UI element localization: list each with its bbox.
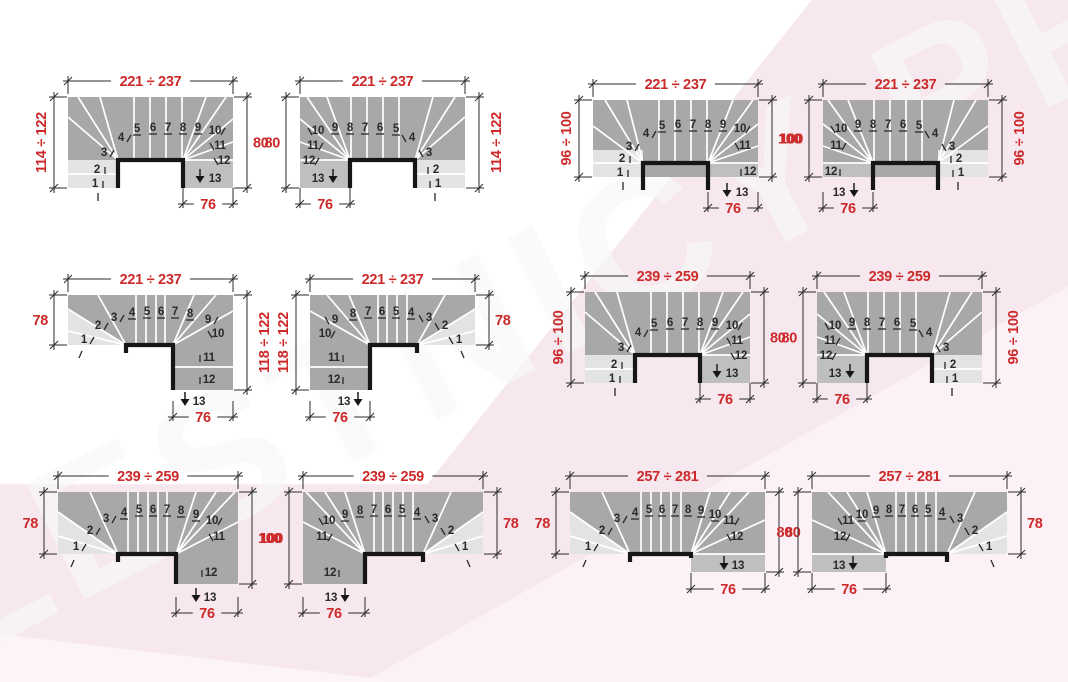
step-number: 12 <box>303 155 315 167</box>
step-number: 10 <box>212 328 224 340</box>
step-number: 12 <box>218 155 230 167</box>
step-number: 5 <box>393 306 400 318</box>
stairwell-edge <box>126 345 173 390</box>
step-number: 9 <box>720 119 726 131</box>
step-number: 12 <box>744 166 756 178</box>
step-number: 8 <box>347 122 354 134</box>
step-number: 2 <box>619 153 625 165</box>
step-number: 10 <box>835 123 847 135</box>
step-number: 6 <box>912 504 918 516</box>
step-number: 9 <box>332 314 338 326</box>
step-number: 6 <box>377 122 383 134</box>
step-number: 11 <box>830 140 843 152</box>
step-number: 3 <box>103 513 109 525</box>
step-number: 8 <box>178 505 185 517</box>
step-number: 13 <box>312 173 324 185</box>
dim-top: 239 ÷ 259 <box>869 269 931 285</box>
dim-left: 80 <box>776 525 792 541</box>
step-number: 13 <box>736 187 748 199</box>
step-number: 3 <box>949 141 955 153</box>
step-number: 10 <box>206 515 218 527</box>
dim-top: 221 ÷ 237 <box>120 272 182 288</box>
step-number: 10 <box>734 123 746 135</box>
step-number: 8 <box>187 308 194 320</box>
step-number: 5 <box>393 123 400 135</box>
dim-right: 96 ÷ 100 <box>1006 310 1022 364</box>
dim-top: 239 ÷ 259 <box>362 469 424 485</box>
step-number: 1 <box>952 373 959 385</box>
dim-left: 78 <box>32 313 48 329</box>
step-number: 7 <box>672 504 678 516</box>
step-number: 6 <box>150 504 156 516</box>
step-number: 2 <box>94 164 100 176</box>
dim-top: 221 ÷ 237 <box>120 74 182 90</box>
step-number: 5 <box>659 120 666 132</box>
dim-bottom: 76 <box>720 582 736 598</box>
step-number: 6 <box>659 504 665 516</box>
step-number: 4 <box>129 307 136 319</box>
step-number: 1 <box>462 541 469 553</box>
dim-left: 96 ÷ 100 <box>559 111 575 165</box>
step-number: 3 <box>432 513 438 525</box>
step-number: 12 <box>324 567 336 579</box>
step-number: 13 <box>204 592 216 604</box>
step-number: 1 <box>81 334 88 346</box>
stair-diagram-d7: 12345678910111213239 ÷ 25996 ÷ 1008076 <box>535 262 800 414</box>
stair-diagram-d6: 12345678910111213221 ÷ 237118 ÷ 1227876 <box>260 265 525 441</box>
dim-bottom: 76 <box>199 606 215 622</box>
dim-left: 78 <box>534 516 550 532</box>
step-number: 3 <box>626 141 632 153</box>
step-number: 11 <box>328 352 341 364</box>
step-number: 3 <box>426 147 432 159</box>
dim-right: 78 <box>495 313 511 329</box>
step-number: 8 <box>357 505 364 517</box>
dim-left: 80 <box>264 136 280 152</box>
stairwell-edge <box>118 554 176 584</box>
step-number: 12 <box>328 374 340 386</box>
step-number: 2 <box>950 359 956 371</box>
stair-diagram-d9: 12345678910111213239 ÷ 2597810076 <box>8 462 288 637</box>
step-number: 6 <box>675 119 681 131</box>
step-number: 6 <box>667 317 673 329</box>
step-number: 9 <box>332 122 338 134</box>
dim-right: 114 ÷ 122 <box>489 112 505 173</box>
step-number: 13 <box>325 592 337 604</box>
step-number: 12 <box>731 531 743 543</box>
step-number: 11 <box>307 140 320 152</box>
step-number: 13 <box>338 396 350 408</box>
step-number: 2 <box>956 153 962 165</box>
step-number: 2 <box>448 525 454 537</box>
step-number: 6 <box>158 306 164 318</box>
step-number: 4 <box>939 507 946 519</box>
step-number: 7 <box>885 119 891 131</box>
step-number: 9 <box>712 317 718 329</box>
step-number: 7 <box>879 317 885 329</box>
step-number: 7 <box>164 504 170 516</box>
step-number: 2 <box>442 320 448 332</box>
dim-left: 78 <box>22 516 38 532</box>
step-number: 12 <box>735 350 747 362</box>
descent-arrow-icon <box>341 595 350 602</box>
step-number: 2 <box>433 164 439 176</box>
step-number: 12 <box>834 531 846 543</box>
step-number: 10 <box>726 320 738 332</box>
dim-bottom: 76 <box>200 197 216 213</box>
descent-arrow-icon <box>723 190 732 197</box>
dim-left: 96 ÷ 100 <box>551 310 567 364</box>
step-number: 7 <box>365 306 371 318</box>
dim-top: 239 ÷ 259 <box>117 469 179 485</box>
step-number: 7 <box>690 119 696 131</box>
dim-top: 221 ÷ 237 <box>352 74 414 90</box>
step-number: 11 <box>824 335 837 347</box>
step-number: 7 <box>165 122 171 134</box>
step-number: 11 <box>213 531 226 543</box>
step-number: 8 <box>864 317 871 329</box>
stair-diagram-d8: 12345678910111213239 ÷ 2598096 ÷ 10076 <box>767 262 1032 414</box>
dim-right: 78 <box>1027 516 1043 532</box>
stairwell-edge <box>886 554 947 562</box>
step-number: 8 <box>870 119 877 131</box>
dim-right: 78 <box>503 516 519 532</box>
step-number: 11 <box>842 515 855 527</box>
step-number: 7 <box>362 122 368 134</box>
dim-top: 221 ÷ 237 <box>645 77 707 93</box>
stair-diagram-d1: 12345678910111213221 ÷ 237114 ÷ 1228076 <box>18 67 283 219</box>
step-number: 5 <box>910 318 917 330</box>
step-number: 9 <box>873 505 879 517</box>
step-number: 6 <box>379 306 385 318</box>
step-number: 8 <box>705 119 712 131</box>
step-number: 12 <box>825 166 837 178</box>
step-number: 5 <box>651 318 658 330</box>
stair-diagram-d4: 12345678910111213221 ÷ 23710096 ÷ 10076 <box>773 70 1038 228</box>
step-number: 8 <box>886 504 893 516</box>
stair-diagram-d2: 12345678910111213221 ÷ 23780114 ÷ 12276 <box>250 67 515 219</box>
step-number: 3 <box>111 312 117 324</box>
dim-bottom: 76 <box>195 410 211 426</box>
dim-top: 221 ÷ 237 <box>875 77 937 93</box>
stair-diagram-d5: 12345678910111213221 ÷ 23778118 ÷ 12276 <box>18 265 283 441</box>
stairwell-edge <box>365 554 423 584</box>
step-number: 6 <box>150 122 156 134</box>
step-number: 11 <box>723 515 736 527</box>
dim-left: 114 ÷ 122 <box>34 112 50 173</box>
step-number: 4 <box>632 507 639 519</box>
step-number: 9 <box>698 505 704 517</box>
step-number: 9 <box>849 317 855 329</box>
step-number: 3 <box>614 513 620 525</box>
step-number: 4 <box>932 128 939 140</box>
dim-left: 100 <box>780 132 804 148</box>
step-number: 9 <box>205 314 211 326</box>
step-number: 5 <box>916 120 923 132</box>
dim-bottom: 76 <box>725 201 741 217</box>
step-number: 3 <box>957 513 963 525</box>
step-number: 13 <box>833 187 845 199</box>
dim-top: 221 ÷ 237 <box>362 272 424 288</box>
step-number: 12 <box>820 350 832 362</box>
step-number: 4 <box>118 132 125 144</box>
step-number: 9 <box>195 122 201 134</box>
dim-bottom: 76 <box>332 410 348 426</box>
step-number: 3 <box>101 147 107 159</box>
step-number: 1 <box>456 334 463 346</box>
dim-bottom: 76 <box>326 606 342 622</box>
step-number: 7 <box>371 504 377 516</box>
step-number: 11 <box>739 140 752 152</box>
step-number: 1 <box>958 167 965 179</box>
step-number: 11 <box>203 352 216 364</box>
step-number: 1 <box>73 541 80 553</box>
step-number: 13 <box>726 368 738 380</box>
stairwell-edge <box>867 355 932 383</box>
step-number: 11 <box>316 531 329 543</box>
step-number: 10 <box>323 515 335 527</box>
step-number: 8 <box>350 308 357 320</box>
step-number: 5 <box>925 504 932 516</box>
dim-right: 96 ÷ 100 <box>1012 111 1028 165</box>
step-number: 4 <box>926 327 933 339</box>
step-number: 4 <box>409 132 416 144</box>
dim-left: 118 ÷ 122 <box>276 312 292 373</box>
step-number: 12 <box>203 374 215 386</box>
step-number: 8 <box>180 122 187 134</box>
step-number: 7 <box>899 504 905 516</box>
stairs-catalog-canvas: LESTNICY-PROSTO.RULESTNICY-PROSTO.RU 123… <box>0 0 1068 682</box>
step-number: 2 <box>87 525 93 537</box>
stairwell-edge <box>635 355 700 383</box>
step-number: 12 <box>205 567 217 579</box>
step-number: 4 <box>121 507 128 519</box>
step-number: 3 <box>426 312 432 324</box>
step-number: 9 <box>342 509 348 521</box>
step-number: 10 <box>319 328 331 340</box>
step-number: 3 <box>943 342 949 354</box>
dim-top: 257 ÷ 281 <box>879 469 941 485</box>
step-number: 8 <box>685 504 692 516</box>
step-number: 1 <box>986 541 993 553</box>
dim-left: 100 <box>260 531 284 547</box>
stairwell-edge <box>118 160 183 188</box>
dim-bottom: 76 <box>317 197 333 213</box>
step-number: 6 <box>894 317 900 329</box>
dim-top: 239 ÷ 259 <box>637 269 699 285</box>
step-number: 10 <box>209 125 221 137</box>
descent-arrow-icon <box>181 399 190 406</box>
stairwell-edge <box>350 160 415 188</box>
step-number: 10 <box>829 320 841 332</box>
step-number: 7 <box>682 317 688 329</box>
step-number: 5 <box>134 123 141 135</box>
dim-left: 80 <box>781 331 797 347</box>
step-number: 6 <box>900 119 906 131</box>
descent-arrow-icon <box>850 190 859 197</box>
step-number: 1 <box>585 541 592 553</box>
step-number: 1 <box>92 178 99 190</box>
step-number: 1 <box>435 178 442 190</box>
step-number: 13 <box>732 560 744 572</box>
step-number: 10 <box>312 125 324 137</box>
stairwell-edge <box>370 345 417 390</box>
stair-diagram-d10: 12345678910111213239 ÷ 2591007876 <box>253 462 533 637</box>
step-number: 5 <box>144 306 151 318</box>
step-number: 6 <box>385 504 391 516</box>
step-number: 8 <box>697 317 704 329</box>
stair-diagram-d3: 12345678910111213221 ÷ 23796 ÷ 10010076 <box>543 70 808 228</box>
dim-top: 257 ÷ 281 <box>637 469 699 485</box>
step-number: 2 <box>972 525 978 537</box>
dim-bottom: 76 <box>834 392 850 408</box>
stairwell-edge <box>630 554 691 562</box>
step-number: 3 <box>618 342 624 354</box>
step-number: 5 <box>646 504 653 516</box>
step-number: 5 <box>399 504 406 516</box>
step-number: 1 <box>617 167 624 179</box>
step-number: 13 <box>209 173 221 185</box>
step-number: 9 <box>193 509 199 521</box>
step-number: 13 <box>193 396 205 408</box>
step-number: 2 <box>95 320 101 332</box>
dim-bottom: 76 <box>840 201 856 217</box>
step-number: 4 <box>643 128 650 140</box>
step-number: 2 <box>611 359 617 371</box>
step-number: 10 <box>709 509 721 521</box>
descent-arrow-icon <box>192 595 201 602</box>
step-number: 5 <box>136 504 143 516</box>
step-number: 4 <box>408 307 415 319</box>
step-number: 4 <box>635 327 642 339</box>
step-number: 4 <box>414 507 421 519</box>
step-number: 10 <box>856 509 868 521</box>
step-number: 13 <box>829 368 841 380</box>
stair-diagram-d12: 12345678910111213257 ÷ 281807876 <box>762 462 1057 612</box>
step-number: 7 <box>172 306 178 318</box>
step-number: 2 <box>599 525 605 537</box>
step-number: 11 <box>214 140 227 152</box>
step-number: 13 <box>833 560 845 572</box>
dim-bottom: 76 <box>717 392 733 408</box>
descent-arrow-icon <box>354 399 363 406</box>
step-number: 11 <box>731 335 744 347</box>
step-number: 9 <box>855 119 861 131</box>
dim-bottom: 76 <box>841 582 857 598</box>
step-number: 1 <box>609 373 616 385</box>
